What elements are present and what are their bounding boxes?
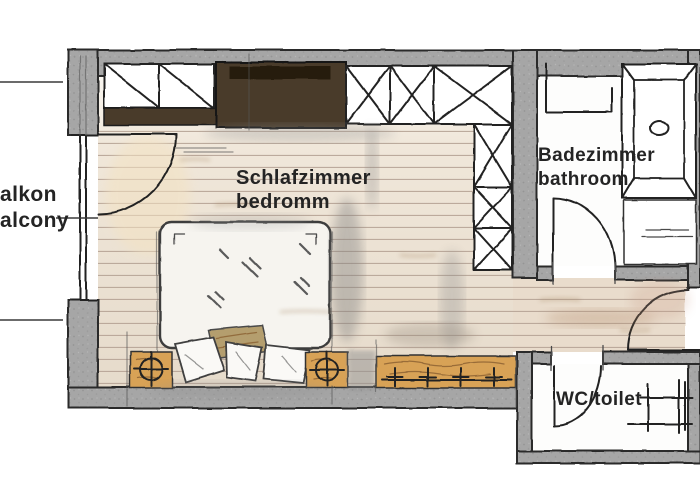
wall-wc-left <box>517 352 532 463</box>
wall-right-lower <box>688 350 700 463</box>
wall-wc-top-right <box>603 352 700 364</box>
shadow-patch <box>348 350 375 390</box>
bathroom-label-de: Badezimmer <box>538 145 655 166</box>
wall-left-upper <box>68 50 98 135</box>
x-closet-side <box>474 124 512 270</box>
wall-bedroom-bathroom <box>513 50 537 278</box>
vanity <box>624 200 696 264</box>
wc-label: WC/toilet <box>556 389 642 410</box>
balcony-label-en: alcony <box>0 209 69 232</box>
bathroom-label-en: bathroom <box>538 169 629 190</box>
floor-plan-scan: Schlafzimmer bedromm Badezimmer bathroom… <box>0 0 700 500</box>
wardrobe-diagonal-closet <box>104 64 214 108</box>
wall-wc-bottom <box>517 451 700 463</box>
balcony-label-de: alkon <box>0 183 57 206</box>
nightstand-left <box>130 352 172 388</box>
floor-plan-drawing: Schlafzimmer bedromm Badezimmer bathroom… <box>0 0 700 500</box>
nightstand-right <box>306 352 348 388</box>
drain-icon <box>650 121 668 135</box>
wall-bath-bottom-left <box>537 266 553 280</box>
dark-cabinet <box>216 62 346 128</box>
bedroom-label-en: bedromm <box>236 191 330 213</box>
pillow <box>263 345 310 383</box>
x-closet-top <box>346 66 512 124</box>
bathtub <box>622 64 696 198</box>
bedroom-label-de: Schlafzimmer <box>236 167 371 189</box>
